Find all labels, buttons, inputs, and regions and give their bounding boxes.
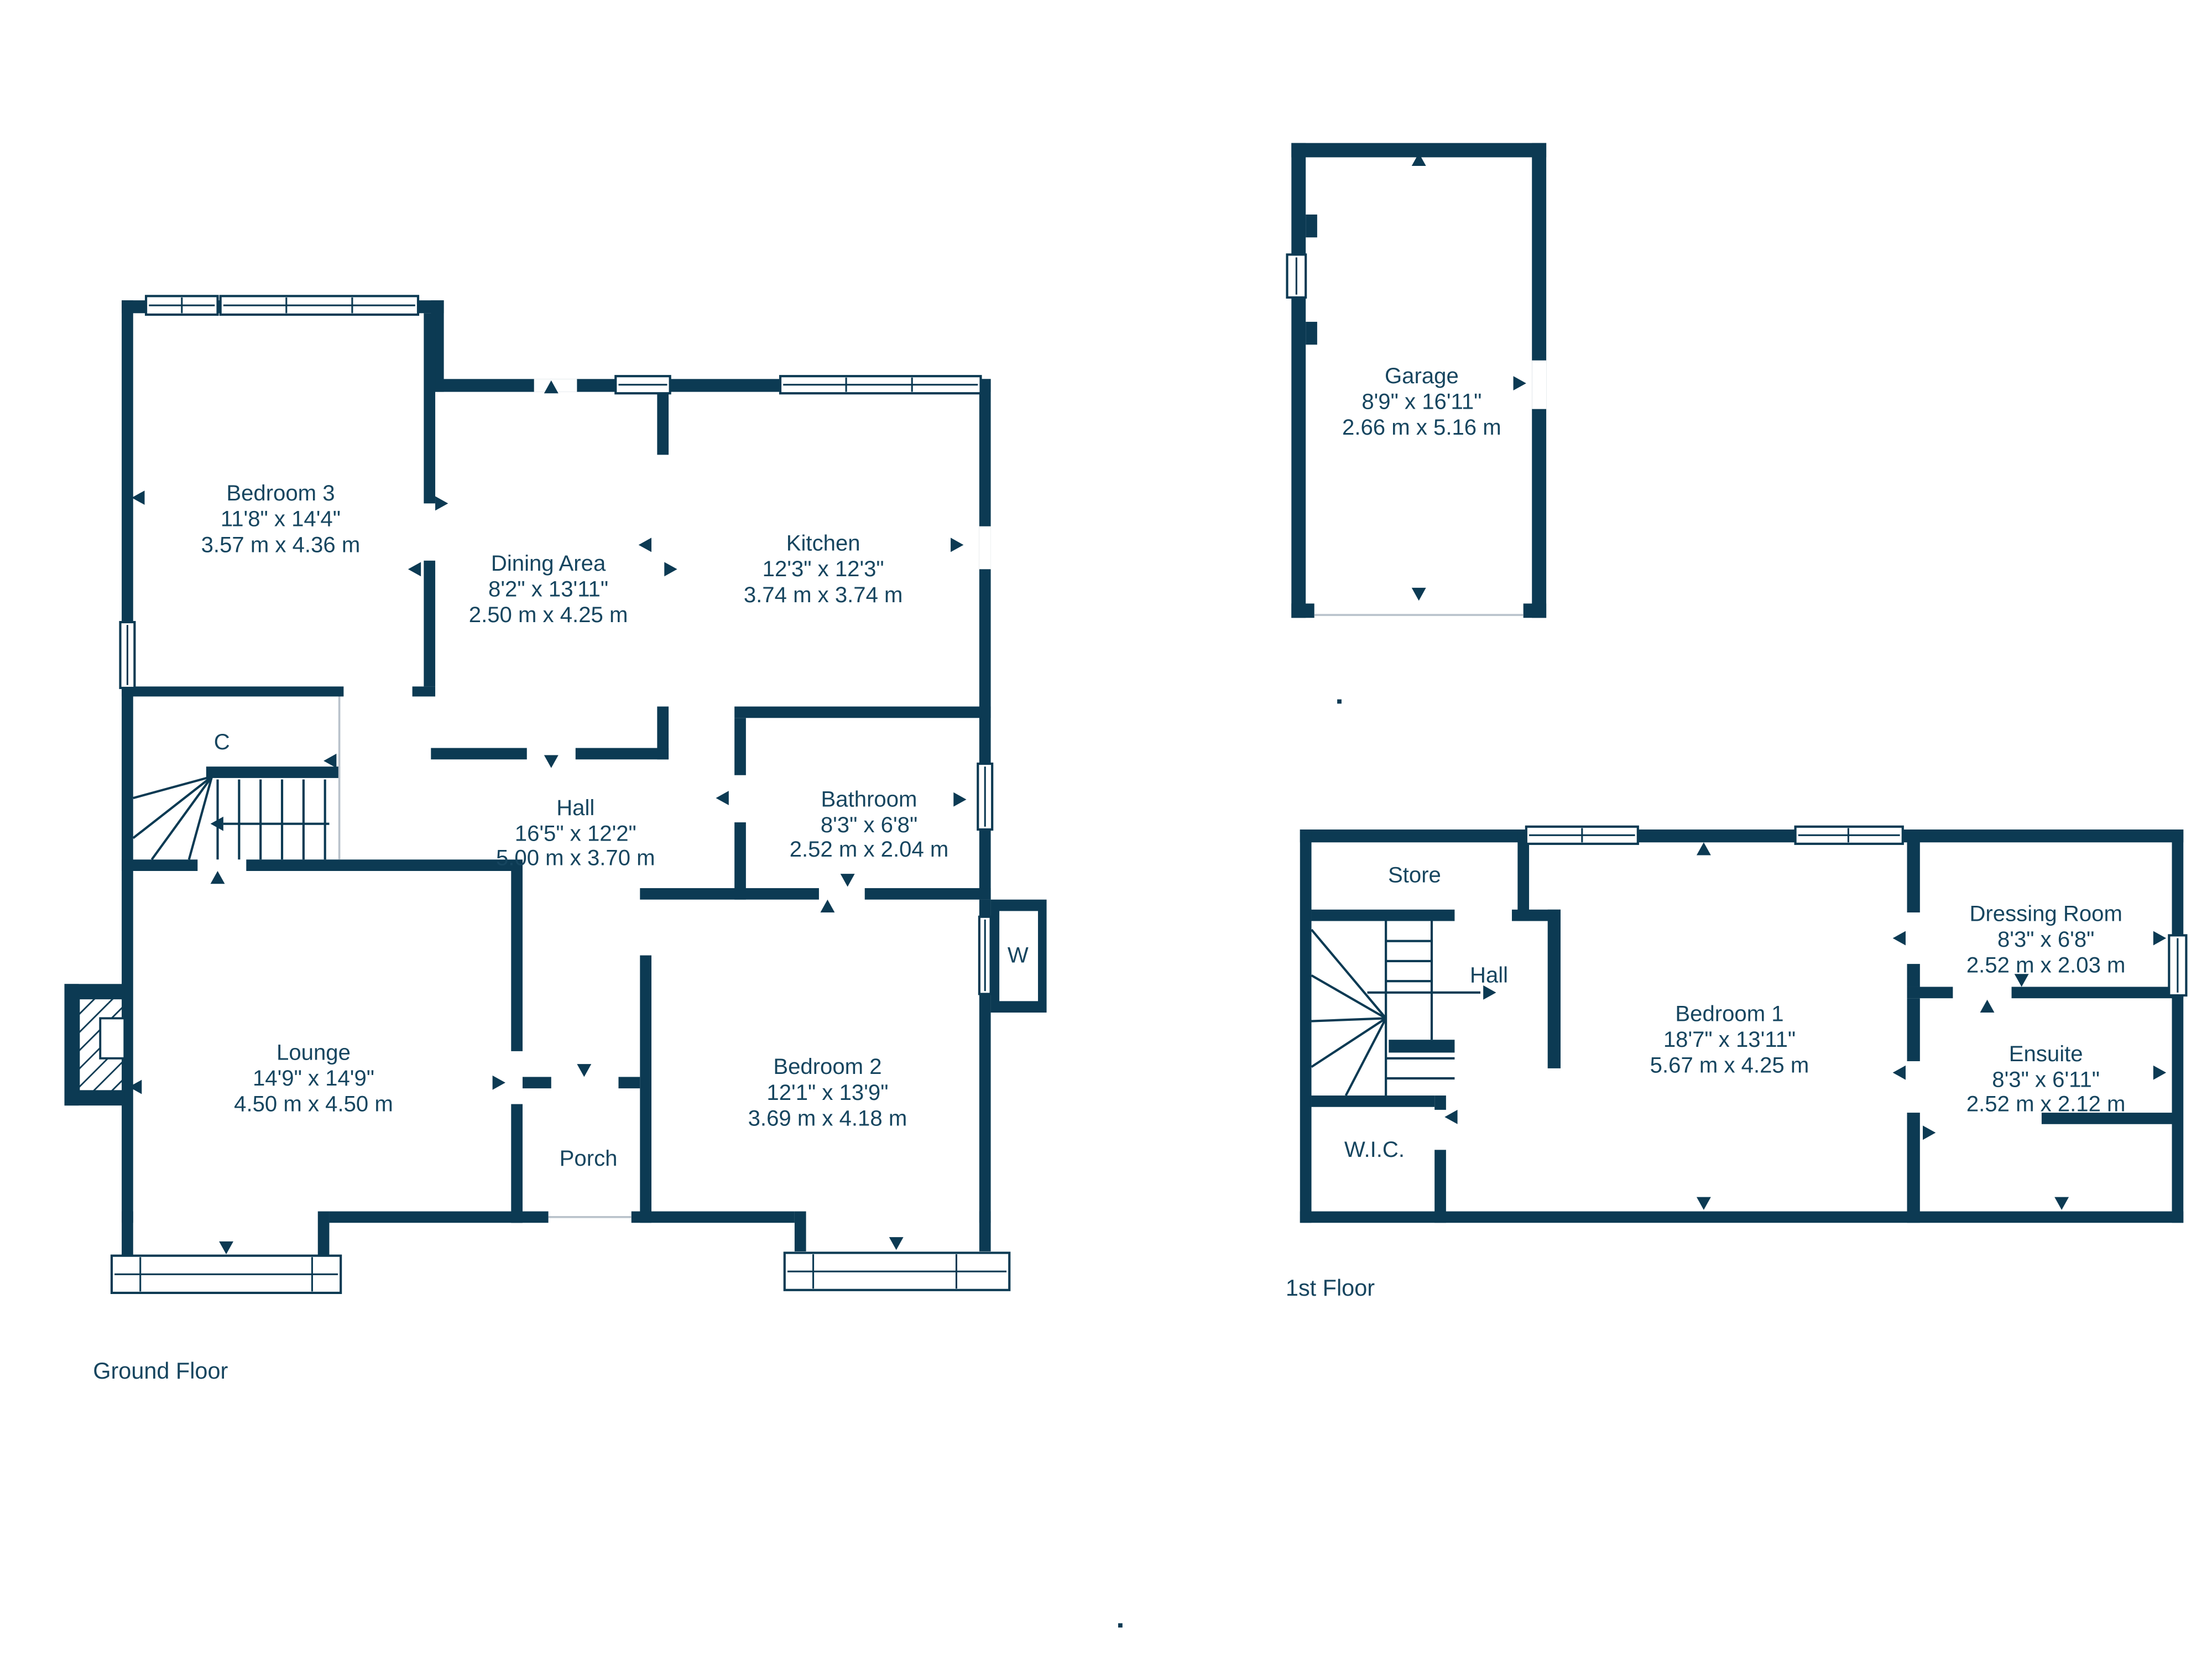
stray-dot-garage — [1337, 700, 1342, 704]
room-metric: 4.50 m x 4.50 m — [234, 1092, 393, 1117]
room-label-lounge: Lounge 14'9" x 14'9" 4.50 m x 4.50 m — [234, 1040, 393, 1116]
room-label-bedroom1: Bedroom 1 18'7" x 13'11" 5.67 m x 4.25 m — [1650, 1002, 1809, 1078]
room-label-cupboard: C — [214, 730, 230, 754]
room-label-hall-first: Hall — [1470, 963, 1508, 988]
room-imperial: 8'3" x 6'8" — [821, 813, 917, 837]
room-name: Lounge — [276, 1040, 351, 1065]
room-imperial: 8'3" x 6'8" — [1997, 927, 2094, 952]
floor-label-ground: Ground Floor — [93, 1358, 228, 1384]
room-metric: 2.50 m x 4.25 m — [469, 603, 628, 627]
room-name: Ensuite — [2009, 1042, 2083, 1066]
room-name: Garage — [1385, 364, 1459, 388]
room-label-dressing: Dressing Room 8'3" x 6'8" 2.52 m x 2.03 … — [1966, 902, 2126, 978]
room-name: Bedroom 2 — [773, 1055, 881, 1079]
room-imperial: 8'3" x 6'11" — [1992, 1068, 2100, 1092]
room-label-kitchen: Kitchen 12'3" x 12'3" 3.74 m x 3.74 m — [744, 531, 903, 607]
staircase-first — [1312, 921, 1481, 1096]
room-label-garage: Garage 8'9" x 16'11" 2.66 m x 5.16 m — [1342, 364, 1501, 440]
ground-door-openings — [534, 379, 991, 569]
garage-plan: Garage 8'9" x 16'11" 2.66 m x 5.16 m — [1287, 143, 1547, 618]
room-name: Bathroom — [821, 787, 917, 812]
room-label-bathroom: Bathroom 8'3" x 6'8" 2.52 m x 2.04 m — [790, 787, 949, 862]
room-label-store: Store — [1388, 863, 1441, 888]
ground-floor-plan: Bedroom 3 11'8" x 14'4" 3.57 m x 4.36 m … — [65, 296, 1047, 1384]
room-imperial: 8'9" x 16'11" — [1361, 390, 1481, 414]
room-metric: 2.52 m x 2.04 m — [790, 837, 949, 862]
room-label-hall-ground: Hall 16'5" x 12'2" 5.00 m x 3.70 m — [496, 796, 655, 870]
room-name: Kitchen — [786, 531, 860, 556]
room-metric: 2.52 m x 2.12 m — [1966, 1092, 2126, 1117]
room-metric: 5.00 m x 3.70 m — [496, 846, 655, 870]
room-metric: 5.67 m x 4.25 m — [1650, 1053, 1809, 1078]
room-name: Hall — [556, 796, 594, 820]
room-imperial: 8'2" x 13'11" — [488, 577, 608, 601]
room-name: Bedroom 3 — [226, 481, 335, 505]
room-label-bedroom3: Bedroom 3 11'8" x 14'4" 3.57 m x 4.36 m — [201, 481, 361, 557]
room-metric: 3.69 m x 4.18 m — [748, 1106, 907, 1130]
room-label-ensuite: Ensuite 8'3" x 6'11" 2.52 m x 2.12 m — [1966, 1042, 2126, 1116]
room-metric: 2.66 m x 5.16 m — [1342, 415, 1501, 440]
room-name: Dining Area — [491, 551, 606, 576]
room-imperial: 16'5" x 12'2" — [515, 822, 637, 846]
room-name: Bedroom 1 — [1675, 1002, 1783, 1026]
floor-label-first: 1st Floor — [1286, 1275, 1375, 1301]
room-name: Dressing Room — [1969, 902, 2122, 926]
room-metric: 2.52 m x 2.03 m — [1966, 953, 2126, 978]
room-imperial: 12'1" x 13'9" — [766, 1081, 888, 1105]
room-imperial: 18'7" x 13'11" — [1663, 1027, 1796, 1052]
stray-dot-bottom — [1118, 1623, 1123, 1627]
room-metric: 3.57 m x 4.36 m — [201, 533, 361, 557]
fireplace — [65, 984, 125, 1105]
floorplan-canvas: Bedroom 3 11'8" x 14'4" 3.57 m x 4.36 m … — [0, 0, 2212, 1659]
first-floor-plan: Store Hall Bedroom 1 18'7" x 13'11" 5.67… — [1286, 827, 2186, 1301]
room-imperial: 12'3" x 12'3" — [763, 557, 884, 581]
room-label-porch: Porch — [560, 1146, 618, 1171]
room-label-dining: Dining Area 8'2" x 13'11" 2.50 m x 4.25 … — [469, 551, 628, 627]
room-label-wic: W.I.C. — [1344, 1138, 1405, 1162]
room-imperial: 14'9" x 14'9" — [253, 1066, 374, 1091]
room-label-bedroom2: Bedroom 2 12'1" x 13'9" 3.69 m x 4.18 m — [748, 1055, 907, 1130]
room-imperial: 11'8" x 14'4" — [221, 507, 341, 531]
room-metric: 3.74 m x 3.74 m — [744, 583, 903, 607]
room-label-wardrobe: W — [1008, 943, 1029, 968]
